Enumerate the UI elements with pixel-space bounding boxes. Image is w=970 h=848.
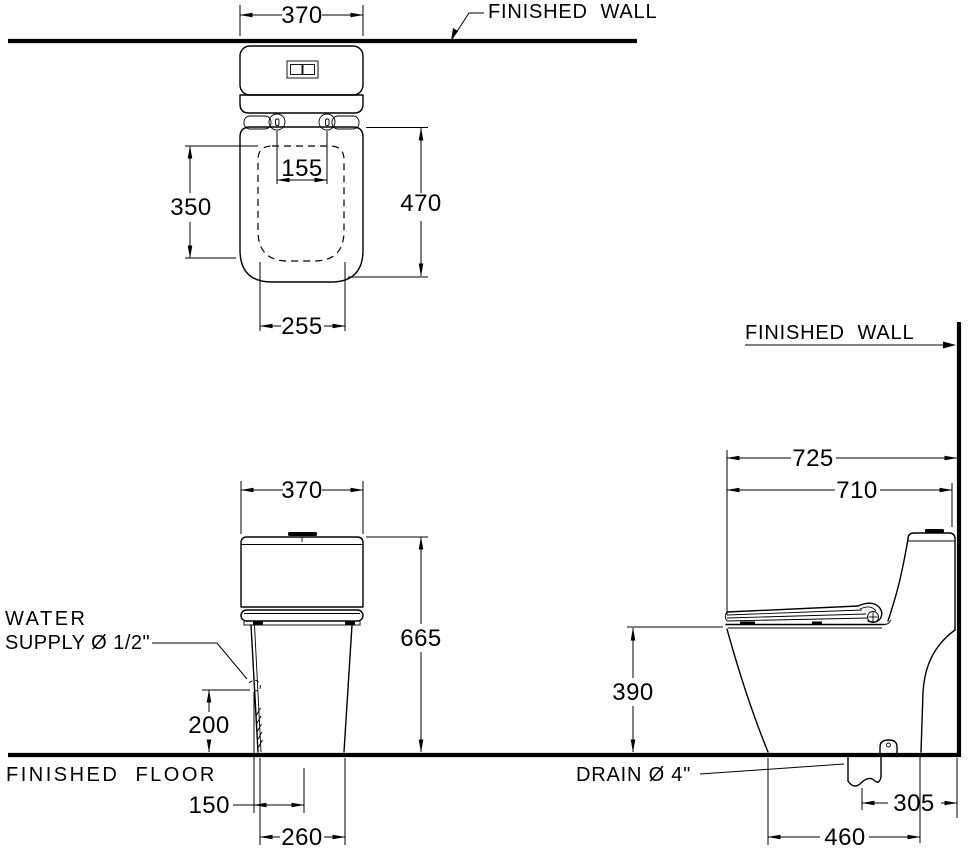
dim-text: 150 bbox=[188, 792, 230, 819]
dim-text: 200 bbox=[188, 712, 230, 739]
hull-back bbox=[921, 630, 955, 752]
plan-view: FINISHED WALL 370 bbox=[8, 1, 657, 340]
dim-text: 260 bbox=[281, 824, 323, 848]
finished-wall-top-label: FINISHED WALL bbox=[488, 1, 657, 23]
finished-wall-top-leader bbox=[452, 13, 484, 39]
drain-label: DRAIN Ø 4" bbox=[576, 764, 691, 786]
dim-text: 350 bbox=[170, 194, 212, 221]
seat-bumper-left bbox=[253, 621, 263, 625]
dim-side-body-depth: 710 bbox=[727, 477, 952, 527]
dim-plan-hinge-spacing: 155 bbox=[277, 131, 327, 184]
dim-text: 470 bbox=[400, 190, 442, 217]
tank-side-front bbox=[888, 539, 908, 621]
dim-side-rim-height: 390 bbox=[612, 627, 723, 752]
dim-text: 710 bbox=[836, 477, 878, 504]
tank-body-plan bbox=[240, 95, 363, 113]
water-supply-label-2: SUPPLY Ø 1/2" bbox=[5, 632, 150, 654]
dim-text: 665 bbox=[400, 625, 442, 652]
water-supply-label-1: WATER bbox=[5, 608, 88, 630]
seat-bumper-front bbox=[740, 622, 755, 626]
finished-wall-side-arrow bbox=[943, 342, 956, 349]
flush-button bbox=[287, 61, 318, 78]
drain-pipe bbox=[848, 757, 881, 786]
floor-bolt bbox=[887, 743, 891, 747]
dim-text: 155 bbox=[281, 155, 323, 182]
pedestal-right bbox=[344, 625, 352, 752]
tank-side-top bbox=[908, 533, 955, 630]
finished-wall-side-label: FINISHED WALL bbox=[745, 322, 914, 344]
technical-drawing: FINISHED WALL 370 bbox=[0, 0, 970, 848]
seat-bumper-rear bbox=[812, 622, 822, 626]
dim-text: 370 bbox=[281, 477, 323, 504]
dim-text: 725 bbox=[792, 445, 834, 472]
front-view: 370 WATER S bbox=[5, 477, 442, 848]
toilet-side bbox=[725, 529, 955, 754]
dim-front-tank-width: 370 bbox=[241, 477, 363, 534]
seat-bumper-right bbox=[345, 621, 355, 625]
dim-text: 255 bbox=[281, 313, 323, 340]
bowl-front-side bbox=[727, 629, 768, 752]
tank-front bbox=[241, 537, 363, 607]
dim-text: 305 bbox=[893, 790, 935, 817]
drain-leader bbox=[700, 764, 844, 774]
dim-side-rough-in: 305 bbox=[862, 758, 957, 818]
seat-front bbox=[241, 610, 363, 621]
drawing-canvas: FINISHED WALL 370 bbox=[0, 0, 970, 848]
side-view: FINISHED WALL 725 710 bbox=[576, 322, 959, 848]
dim-plan-opening-width: 255 bbox=[260, 262, 345, 340]
dim-plan-seat-length: 470 bbox=[348, 128, 442, 278]
dim-plan-opening-length: 350 bbox=[170, 146, 258, 258]
dim-text: 370 bbox=[281, 2, 323, 29]
dim-front-supply-height: 200 bbox=[188, 690, 250, 752]
drain-callout: DRAIN Ø 4" bbox=[576, 757, 881, 786]
water-supply-leader bbox=[152, 643, 247, 679]
seat-side bbox=[725, 603, 882, 622]
tank-lid bbox=[240, 46, 363, 95]
dim-plan-tank-width: 370 bbox=[240, 2, 363, 36]
toilet-front bbox=[241, 532, 363, 752]
water-supply-callout: WATER SUPPLY Ø 1/2" bbox=[5, 608, 247, 679]
dim-front-height: 665 bbox=[366, 537, 442, 752]
finished-floor-label: FINISHED FLOOR bbox=[6, 764, 217, 786]
dim-front-base-width: 260 bbox=[260, 758, 345, 848]
dim-text: 460 bbox=[824, 824, 866, 848]
dim-side-overall-depth: 725 bbox=[727, 445, 957, 615]
dim-text: 390 bbox=[612, 679, 654, 706]
flush-button-front bbox=[288, 532, 317, 536]
